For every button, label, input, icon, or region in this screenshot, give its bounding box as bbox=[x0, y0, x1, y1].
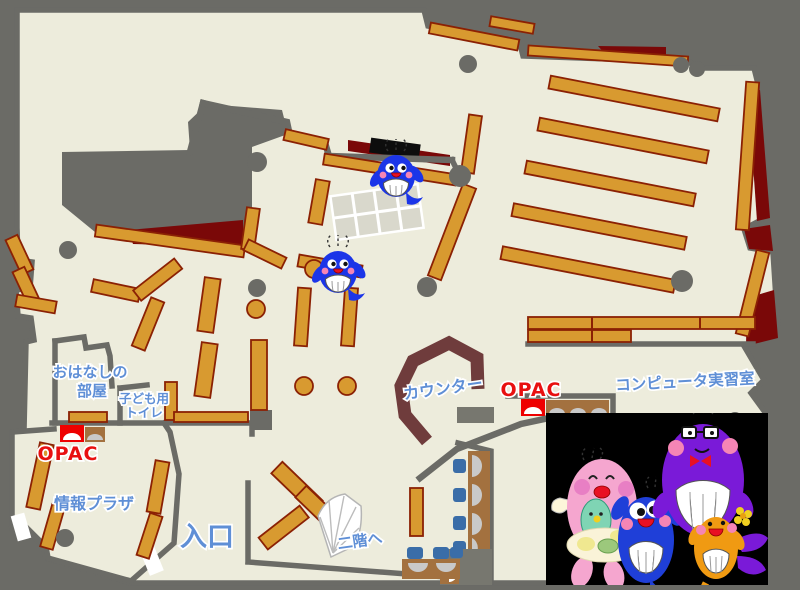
entrance-label: 入口 bbox=[180, 522, 234, 553]
info-plaza-label: 情報プラザ bbox=[54, 494, 134, 513]
floor-map-svg: おはなしの 部屋 子ども用 トイレ OPAC 情報プラザ 入口 カウンター OP… bbox=[0, 0, 800, 590]
kids-toilet-label-line2: トイレ bbox=[125, 405, 163, 420]
mascots-photo bbox=[546, 402, 768, 590]
story-room-label-line1: おはなしの bbox=[52, 363, 127, 381]
story-room-label-line2: 部屋 bbox=[77, 382, 107, 400]
opac-station-left bbox=[60, 425, 105, 442]
library-floor-map: おはなしの 部屋 子ども用 トイレ OPAC 情報プラザ 入口 カウンター OP… bbox=[0, 0, 800, 590]
opac-left-label: OPAC bbox=[38, 443, 99, 465]
kids-toilet-label-line1: 子ども用 bbox=[119, 391, 169, 406]
opac-right-label: OPAC bbox=[501, 379, 562, 401]
return-box bbox=[457, 407, 494, 423]
